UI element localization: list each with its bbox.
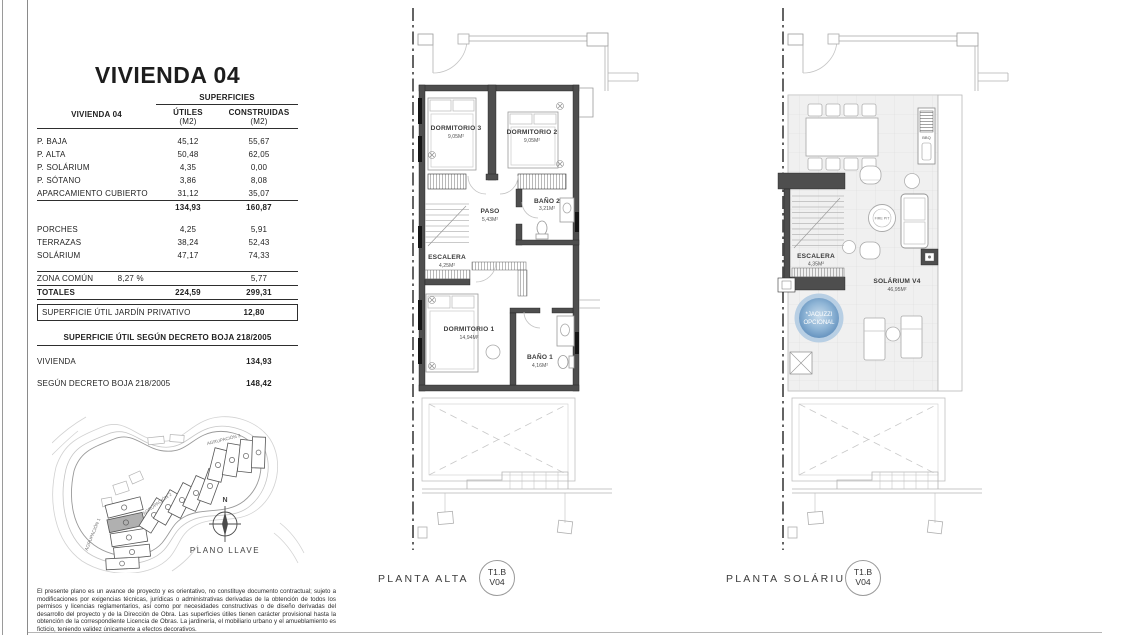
row-construidas: 74,33 xyxy=(220,251,298,260)
decreto-row: VIVIENDA 134,93 xyxy=(37,350,298,372)
table-row: P. SOLÁRIUM 4,35 0,00 xyxy=(37,161,298,174)
zona-comun-row: ZONA COMÚN 8,27 % 5,77 xyxy=(37,271,298,285)
surface-table: VIVIENDA 04 SUPERFICIES ÚTILES (M2) CONS… xyxy=(37,93,298,394)
decreto-section-header: SUPERFICIE ÚTIL SEGÚN DECRETO BOJA 218/2… xyxy=(37,330,298,346)
planta-solarium-plan: BBQ FIRE PIT xyxy=(742,0,1022,562)
totales-construidas: 299,31 xyxy=(220,288,298,297)
jardin-value: 12,80 xyxy=(215,308,293,317)
row-label: P. SOLÁRIUM xyxy=(37,163,156,172)
room-label-bano2: BAÑO 2 xyxy=(534,196,560,205)
legal-disclaimer: El presente plano es un avance de proyec… xyxy=(37,588,336,633)
planta-alta-caption: PLANTA ALTA xyxy=(378,573,469,585)
room-area-bano1: 4,16M² xyxy=(532,363,548,369)
pergola-outline xyxy=(788,472,982,538)
totales-label: TOTALES xyxy=(37,288,156,297)
planta-alta-type-badge: T1.B V04 xyxy=(479,560,515,596)
col-header-construidas: CONSTRUIDAS xyxy=(220,108,298,117)
room-label-dormitorio3: DORMITORIO 3 xyxy=(431,125,482,132)
subtotal-utiles: 134,93 xyxy=(156,203,220,212)
room-area-dormitorio1: 14,94M² xyxy=(459,335,478,341)
table-row: SOLÁRIUM 47,17 74,33 xyxy=(37,249,298,262)
jacuzzi: *JACUZZI OPCIONAL xyxy=(795,294,844,343)
compass-icon xyxy=(209,506,241,542)
frame-line-inner xyxy=(27,0,28,635)
table-row: P. BAJA 45,12 55,67 xyxy=(37,135,298,148)
room-area-escalera: 4,25M² xyxy=(439,263,455,269)
table-group-header: SUPERFICIES xyxy=(156,93,298,105)
jacuzzi-label-line1: *JACUZZI xyxy=(806,312,833,318)
row-label: APARCAMIENTO CUBIERTO xyxy=(37,189,156,198)
row-label: P. ALTA xyxy=(37,150,156,159)
jardin-privativo-row: SUPERFICIE ÚTIL JARDÍN PRIVATIVO 12,80 xyxy=(37,304,298,321)
row-utiles: 38,24 xyxy=(156,238,220,247)
plano-llave-caption: PLANO LLAVE xyxy=(190,546,260,555)
skylight xyxy=(790,352,812,374)
room-area-solarium: 46,95M² xyxy=(887,287,906,293)
row-utiles: 47,17 xyxy=(156,251,220,260)
room-area-bano2: 3,21M² xyxy=(539,206,555,212)
row-utiles: 4,25 xyxy=(156,225,220,234)
table-row: TERRAZAS 38,24 52,43 xyxy=(37,236,298,249)
row-utiles: 4,35 xyxy=(156,163,220,172)
table-row: P. ALTA 50,48 62,05 xyxy=(37,148,298,161)
side-stubs xyxy=(579,300,600,308)
row-construidas: 8,08 xyxy=(220,176,298,185)
firepit-label: FIRE PIT xyxy=(875,217,891,221)
decreto-value: 134,93 xyxy=(220,357,298,366)
zona-comun-pct: 8,27 % xyxy=(118,274,144,283)
zona-comun-construidas: 5,77 xyxy=(220,274,298,283)
site-units-agrupacion-1 xyxy=(105,497,150,570)
row-construidas: 55,67 xyxy=(220,137,298,146)
subtotal-construidas: 160,87 xyxy=(220,203,298,212)
table-row: P. SÓTANO 3,86 8,08 xyxy=(37,174,298,187)
room-area-escalera: 4,35M² xyxy=(808,262,824,268)
terrace-outline xyxy=(418,33,638,91)
void-below xyxy=(422,398,575,481)
row-label: P. SÓTANO xyxy=(37,176,156,185)
decreto-label: VIVIENDA xyxy=(37,357,220,366)
jardin-label: SUPERFICIE ÚTIL JARDÍN PRIVATIVO xyxy=(42,308,215,317)
table-header: VIVIENDA 04 SUPERFICIES ÚTILES (M2) CONS… xyxy=(37,93,298,126)
pergola-outline xyxy=(418,472,612,538)
table-row: APARCAMIENTO CUBIERTO 31,12 35,07 xyxy=(37,187,298,200)
compass-north-label: N xyxy=(222,497,227,504)
zona-comun-label: ZONA COMÚN xyxy=(37,274,93,283)
room-area-dormitorio3: 9,05M² xyxy=(448,134,464,140)
site-key-plan: AGRUPACIÓN 1 AGRUPACIÓN 2 AGRUPACIÓN 3 N… xyxy=(52,403,307,573)
planta-solarium-type-badge: T1.B V04 xyxy=(845,560,881,596)
row-label: PORCHES xyxy=(37,225,156,234)
terrace-outline xyxy=(788,33,1008,91)
planta-alta-plan: DORMITORIO 3 9,05M² DORMITORIO 2 9,05M² … xyxy=(372,0,652,562)
col-unit-utiles: (M2) xyxy=(156,117,220,126)
row-label: TERRAZAS xyxy=(37,238,156,247)
agrupacion-1-label: AGRUPACIÓN 1 xyxy=(83,517,102,552)
page-title: VIVIENDA 04 xyxy=(37,62,298,89)
row-construidas: 35,07 xyxy=(220,189,298,198)
row-construidas: 5,91 xyxy=(220,225,298,234)
room-label-paso: PASO xyxy=(481,208,500,215)
staircase xyxy=(425,204,469,246)
planta-solarium-caption: PLANTA SOLÁRIUM xyxy=(726,573,856,585)
room-label-dormitorio2: DORMITORIO 2 xyxy=(507,129,558,136)
row-utiles: 3,86 xyxy=(156,176,220,185)
col-unit-construidas: (M2) xyxy=(220,117,298,126)
bbq-label: BBQ xyxy=(922,135,930,140)
totales-row: TOTALES 224,59 299,31 xyxy=(37,285,298,299)
room-label-escalera: ESCALERA xyxy=(797,253,835,260)
row-utiles: 31,12 xyxy=(156,189,220,198)
table-row-header: VIVIENDA 04 xyxy=(37,93,156,126)
room-area-dormitorio2: 9,05M² xyxy=(524,138,540,144)
table-row: PORCHES 4,25 5,91 xyxy=(37,223,298,236)
decreto-value: 148,42 xyxy=(220,379,298,388)
row-utiles: 45,12 xyxy=(156,137,220,146)
badge-unit: V04 xyxy=(489,578,504,588)
room-label-bano1: BAÑO 1 xyxy=(527,352,553,361)
plan-sheet: VIVIENDA 04 VIVIENDA 04 SUPERFICIES ÚTIL… xyxy=(0,0,1130,635)
row-construidas: 0,00 xyxy=(220,163,298,172)
room-label-dormitorio1: DORMITORIO 1 xyxy=(444,326,495,333)
decreto-row: SEGÚN DECRETO BOJA 218/2005 148,42 xyxy=(37,372,298,394)
jacuzzi-label-line2: OPCIONAL xyxy=(803,320,835,326)
decreto-label: SEGÚN DECRETO BOJA 218/2005 xyxy=(37,379,220,388)
room-label-escalera: ESCALERA xyxy=(428,254,466,261)
void-below xyxy=(792,398,945,481)
row-construidas: 62,05 xyxy=(220,150,298,159)
row-utiles: 50,48 xyxy=(156,150,220,159)
room-label-solarium: SOLÁRIUM V4 xyxy=(873,276,920,285)
row-label: P. BAJA xyxy=(37,137,156,146)
door-arcs xyxy=(468,176,540,328)
facade-jog xyxy=(579,88,593,117)
room-area-paso: 5,43M² xyxy=(482,217,498,223)
row-construidas: 52,43 xyxy=(220,238,298,247)
col-header-utiles: ÚTILES xyxy=(156,108,220,117)
subtotal-row: 134,93 160,87 xyxy=(37,200,298,214)
agrupacion-3-label: AGRUPACIÓN 3 xyxy=(206,432,241,446)
badge-unit: V04 xyxy=(855,578,870,588)
frame-line-outer xyxy=(2,0,3,635)
totales-utiles: 224,59 xyxy=(156,288,220,297)
row-label: SOLÁRIUM xyxy=(37,251,156,260)
